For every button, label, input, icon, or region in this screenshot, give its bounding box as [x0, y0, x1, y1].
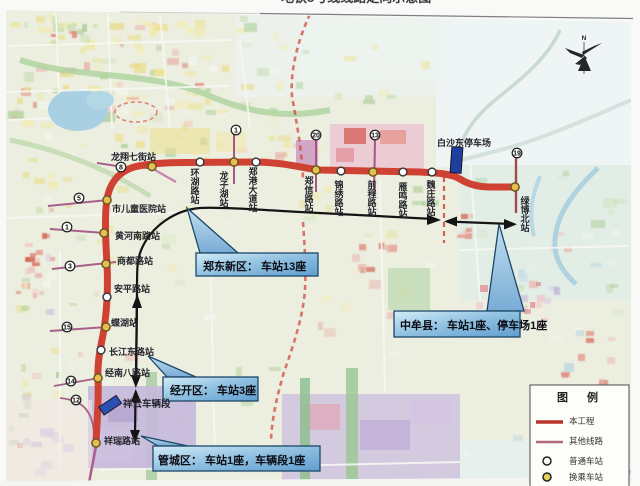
svg-text:15: 15 — [63, 325, 71, 332]
svg-text:1: 1 — [234, 128, 238, 135]
svg-text:8: 8 — [119, 165, 123, 172]
svg-text:3: 3 — [68, 264, 72, 271]
svg-text:19: 19 — [513, 151, 521, 158]
svg-text:14: 14 — [67, 379, 75, 386]
svg-text:13: 13 — [371, 133, 379, 140]
svg-text:1: 1 — [65, 225, 69, 232]
svg-text:20: 20 — [312, 133, 320, 140]
svg-text:5: 5 — [77, 196, 81, 203]
svg-text:12: 12 — [72, 398, 80, 405]
svg-text:N: N — [582, 35, 587, 42]
